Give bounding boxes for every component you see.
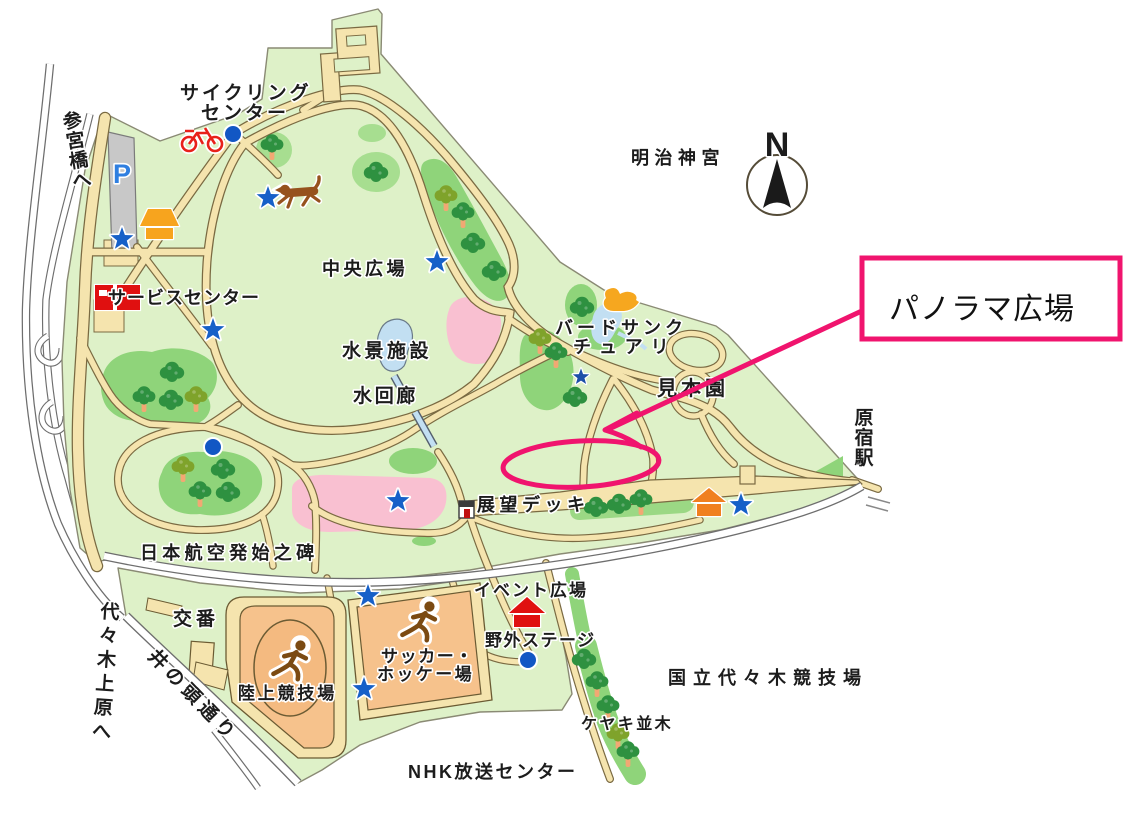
svg-text:チュアリ: チュアリ xyxy=(573,337,677,357)
svg-text:ケヤキ並木: ケヤキ並木 xyxy=(581,714,673,733)
svg-text:P: P xyxy=(113,159,131,189)
svg-text:原: 原 xyxy=(93,697,113,719)
svg-text:水景施設: 水景施設 xyxy=(342,339,432,362)
svg-text:センター: センター xyxy=(201,102,289,124)
svg-text:明治神宮: 明治神宮 xyxy=(631,147,725,168)
svg-text:イベント広場: イベント広場 xyxy=(474,580,588,600)
svg-text:日本航空発始之碑: 日本航空発始之碑 xyxy=(140,542,318,563)
svg-text:へ: へ xyxy=(71,169,93,193)
svg-text:駅: 駅 xyxy=(853,447,874,469)
svg-text:展望デッキ: 展望デッキ xyxy=(477,494,590,515)
svg-text:サッカー・: サッカー・ xyxy=(381,647,474,666)
svg-text:宿: 宿 xyxy=(854,426,873,449)
svg-text:代: 代 xyxy=(99,600,121,623)
svg-text:ホッケー場: ホッケー場 xyxy=(377,665,474,684)
svg-text:へ: へ xyxy=(91,721,111,743)
svg-text:バードサンク: バードサンク xyxy=(555,318,687,338)
svg-text:水回廊: 水回廊 xyxy=(353,384,418,407)
svg-text:原: 原 xyxy=(854,408,873,429)
svg-text:国立代々木競技場: 国立代々木競技場 xyxy=(668,667,868,688)
svg-text:陸上競技場: 陸上競技場 xyxy=(238,683,337,703)
svg-text:野外ステージ: 野外ステージ xyxy=(485,630,596,650)
svg-text:N: N xyxy=(765,126,790,164)
svg-text:木: 木 xyxy=(95,647,118,671)
svg-text:上: 上 xyxy=(95,672,116,695)
svg-text:NHK放送センター: NHK放送センター xyxy=(408,761,578,782)
svg-text:サービスセンター: サービスセンター xyxy=(108,288,260,308)
svg-text:々: 々 xyxy=(98,624,119,647)
svg-text:パノラマ広場: パノラマ広場 xyxy=(889,293,1075,326)
svg-text:交番: 交番 xyxy=(173,607,219,630)
svg-text:サイクリング: サイクリング xyxy=(180,81,312,104)
svg-text:中央広場: 中央広場 xyxy=(322,258,408,279)
